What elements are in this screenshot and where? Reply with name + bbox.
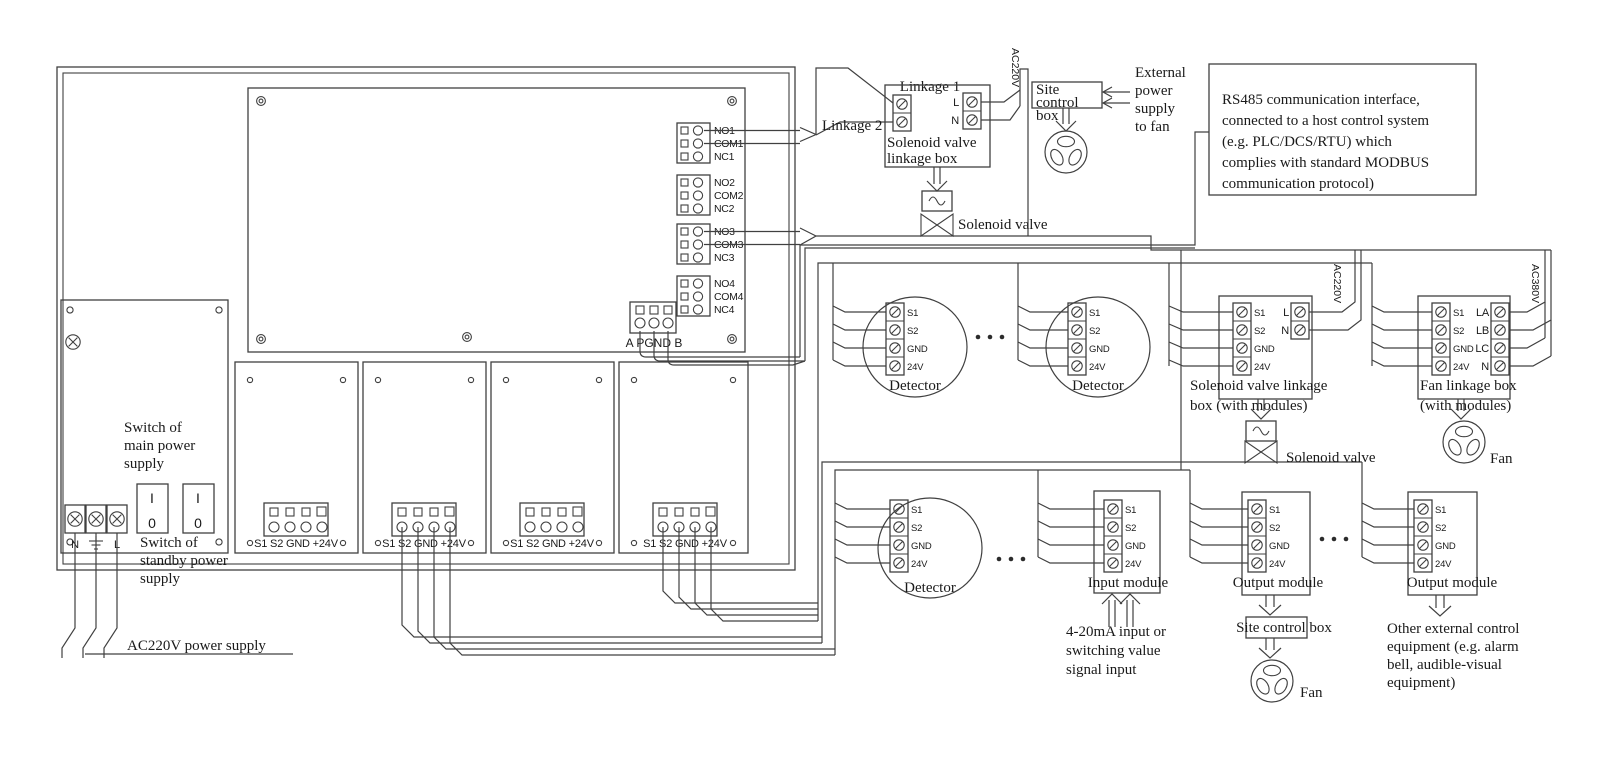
output-module-2: S1 S2 GND 24V Output module Other extern… [1362,462,1519,691]
card3-terminals-label: S1 S2 GND +24V [510,538,595,550]
card2-terminals-label: S1 S2 GND +24V [382,538,467,550]
terminal-l-label: L [1283,307,1289,319]
terminal-s2-label: S2 [1435,523,1446,534]
main-power-switch[interactable]: I 0 [137,484,168,533]
diagram-canvas: NO1 COM1 NC1 NO2 COM2 NC2 NO3 COM3 NC3 N… [0,0,1604,760]
arrow-down-icon [1429,606,1451,616]
rs485-line-2: connected to a host control system [1222,113,1429,129]
terminal-l-label: L [953,97,959,109]
controller-cabinet: NO1 COM1 NC1 NO2 COM2 NC2 NO3 COM3 NC3 N… [57,67,795,587]
box-title-2: (with modules) [1420,398,1511,414]
other-equipment-label-1: Other external control [1387,621,1519,637]
other-equipment-label-2: equipment (e.g. alarm [1387,639,1519,655]
ac220v-power-supply-label: AC220V power supply [127,638,266,654]
card4-terminals-label: S1 S2 GND +24V [643,538,728,550]
detector-2: S1 S2 GND 24V Detector [1018,263,1150,397]
relay2-nc-label: NC2 [714,203,735,215]
other-equipment-label-4: equipment) [1387,675,1455,691]
input-module: S1 S2 GND 24V Input module 4-20mA input … [1038,470,1169,678]
terminal-s2-label: S2 [1089,326,1100,337]
wiring-diagram: NO1 COM1 NC1 NO2 COM2 NC2 NO3 COM3 NC3 N… [0,0,1604,760]
solenoid-coil-icon [1246,421,1276,441]
standby-switch-label-1: Switch of [140,535,198,551]
solenoid-valve-label: Solenoid valve [958,217,1048,233]
terminal-s2-label: S2 [1125,523,1136,534]
terminal-s1-label: S1 [1453,308,1464,319]
relay4-nc-label: NC4 [714,304,735,316]
linkage2-label: Linkage 2 [822,118,882,134]
detector-1: S1 S2 GND 24V Detector [833,263,967,397]
display-panel [248,88,745,352]
detector-label: Detector [1072,378,1124,394]
bundle-chevron-icon [800,228,816,245]
box-title-1: Solenoid valve [887,135,977,151]
panel-screw-icon [66,335,80,349]
box-title-2: linkage box [887,151,958,167]
terminal-24v-label: 24V [1254,362,1271,373]
rs485-line-4: complies with standard MODBUS [1222,155,1429,171]
switch-on-label: I [196,490,200,506]
main-switch-label-2: main power [124,438,195,454]
terminal-s2-label: S2 [911,523,922,534]
detector-label: Detector [889,378,941,394]
top-ac220v-wiring: AC220V [981,48,1028,236]
relay3-nc-label: NC3 [714,252,735,264]
terminal-gnd-label: GND [1254,344,1275,355]
input-signal-label-1: 4-20mA input or [1066,624,1166,640]
linkage1-label: Linkage 1 [900,79,960,95]
terminal-gnd-label: GND [1435,541,1456,552]
relay4-com-label: COM4 [714,291,744,303]
fan-label: Fan [1490,451,1513,467]
ellipsis-dots [976,335,1005,340]
terminal-s2-label: S2 [907,326,918,337]
terminal-s1-label: S1 [1435,505,1446,516]
ac220v-vertical-label: AC220V [1009,48,1021,87]
valve-icon [921,214,953,236]
box-title-1: Fan linkage box [1420,378,1517,394]
bundle-chevron-icon [800,128,816,142]
terminal-gnd-label: GND [1089,344,1110,355]
main-switch-label-1: Switch of [124,420,182,436]
switch-off-label: 0 [148,515,156,531]
output-module-label: Output module [1407,575,1498,591]
external-power-input: External power supply to fan [1103,65,1186,135]
ellipsis-dots [1320,537,1349,542]
solenoid-coil-icon [922,191,952,211]
terminal-s1-label: S1 [911,505,922,516]
standby-switch-label-3: supply [140,571,181,587]
terminal-lb-label: LB [1476,325,1489,337]
terminal-24v-label: 24V [1453,362,1470,373]
terminal-s1-label: S1 [1125,505,1136,516]
external-power-label-3: supply [1135,101,1176,117]
valve-icon [1245,441,1277,463]
terminal-gnd-label: GND [911,541,932,552]
main-switch-label-3: supply [124,456,165,472]
relay1-nc-label: NC1 [714,151,735,163]
terminal-24v-label: 24V [1435,559,1452,570]
external-power-label-4: to fan [1135,119,1170,135]
solenoid-valve-linkage-box-top: L N Solenoid valve linkage box [885,85,990,167]
terminal-24v-label: 24V [1089,362,1106,373]
fan-icon [1045,131,1087,173]
output-module-1: S1 S2 GND 24V Output module Site control… [1190,470,1332,702]
terminal-s2-label: S2 [1254,326,1265,337]
site-control-box-label: Site control box [1236,620,1332,636]
input-signal-label-3: signal input [1066,662,1137,678]
terminal-24v-label: 24V [911,559,928,570]
output-module-label: Output module [1233,575,1324,591]
relay2-no-label: NO2 [714,177,735,189]
solenoid-valve-top: Solenoid valve [921,167,1048,236]
input-module-label: Input module [1088,575,1169,591]
standby-power-switch[interactable]: I 0 [183,484,214,533]
channel-card-1: S1 S2 GND +24V [235,362,358,553]
arrow-down-icon [927,181,947,191]
external-power-label-2: power [1135,83,1173,99]
terminal-s1-label: S1 [907,308,918,319]
box-title-1: Solenoid valve linkage [1190,378,1328,394]
terminal-s1-label: S1 [1269,505,1280,516]
rs485-line-5: communication protocol) [1222,176,1374,192]
terminal-gnd-label: GND [907,344,928,355]
channel-card-2: S1 S2 GND +24V [363,362,486,553]
terminal-24v-label: 24V [907,362,924,373]
terminal-n-label: N [1481,361,1489,373]
arrow-down-icon [1056,121,1076,131]
terminal-n-label: N [1281,325,1289,337]
channel-card-3: S1 S2 GND +24V [491,362,614,553]
terminal-s1-label: S1 [1089,308,1100,319]
rs485-line-1: RS485 communication interface, [1222,92,1420,108]
ellipsis-dots [997,557,1026,562]
switch-on-label: I [150,490,154,506]
relay1-wiring: Linkage 1 Linkage 2 [704,68,960,144]
site-control-box-top: Site control box [1032,82,1102,173]
terminal-gnd-label: GND [1453,344,1474,355]
rs485-line-3: (e.g. PLC/DCS/RTU) which [1222,134,1392,150]
input-signal-label-2: switching value [1066,643,1161,659]
terminal-24v-label: 24V [1125,559,1142,570]
terminal-s2-label: S2 [1269,523,1280,534]
relay2-com-label: COM2 [714,190,744,202]
lower-signal-bus [402,250,1362,655]
relay3-wiring [704,228,1551,250]
terminal-s2-label: S2 [1453,326,1464,337]
power-supply-panel: Switch of main power supply I 0 I 0 N [61,300,228,587]
switch-off-label: 0 [194,515,202,531]
fan-label: Fan [1300,685,1323,701]
rs485-note-box: RS485 communication interface, connected… [1209,64,1476,195]
standby-switch-label-2: standby power [140,553,228,569]
arrow-up-icon [1120,594,1140,604]
other-equipment-label-3: bell, audible-visual [1387,657,1502,673]
terminal-lc-label: LC [1475,343,1489,355]
detector-3: S1 S2 GND 24V Detector [835,498,982,598]
terminal-gnd-label: GND [1125,541,1146,552]
terminal-gnd-label: GND [1269,541,1290,552]
terminal-la-label: LA [1476,307,1490,319]
solenoid-valve-linkage-box-modules: S1 S2 GND 24V L N AC220V Solenoid valve … [1169,250,1376,466]
channel-card-4: S1 S2 GND +24V [619,362,748,553]
terminal-24v-label: 24V [1269,559,1286,570]
arrow-down-icon [1259,605,1281,615]
terminal-s1-label: S1 [1254,308,1265,319]
ac220v-vertical-label: AC220V [1331,264,1343,303]
relay-output-blocks: NO1 COM1 NC1 NO2 COM2 NC2 NO3 COM3 NC3 N… [677,123,744,316]
external-power-label-1: External [1135,65,1186,81]
relay4-no-label: NO4 [714,278,735,290]
card1-terminals-label: S1 S2 GND +24V [254,538,339,550]
fan-icon [1443,421,1485,463]
arrow-up-icon [1102,594,1122,604]
fan-icon [1251,660,1293,702]
box-title-2: box (with modules) [1190,398,1308,414]
site-box-label-3: box [1036,108,1059,124]
detector-label: Detector [904,580,956,596]
fan-linkage-box-modules: S1 S2 GND 24V LA LB LC N AC380V Fan link… [1372,250,1551,467]
arrow-down-icon [1259,648,1281,658]
terminal-n-label: N [951,115,959,127]
ac380v-vertical-label: AC380V [1529,264,1541,303]
mains-wiring: AC220V power supply [62,533,293,658]
